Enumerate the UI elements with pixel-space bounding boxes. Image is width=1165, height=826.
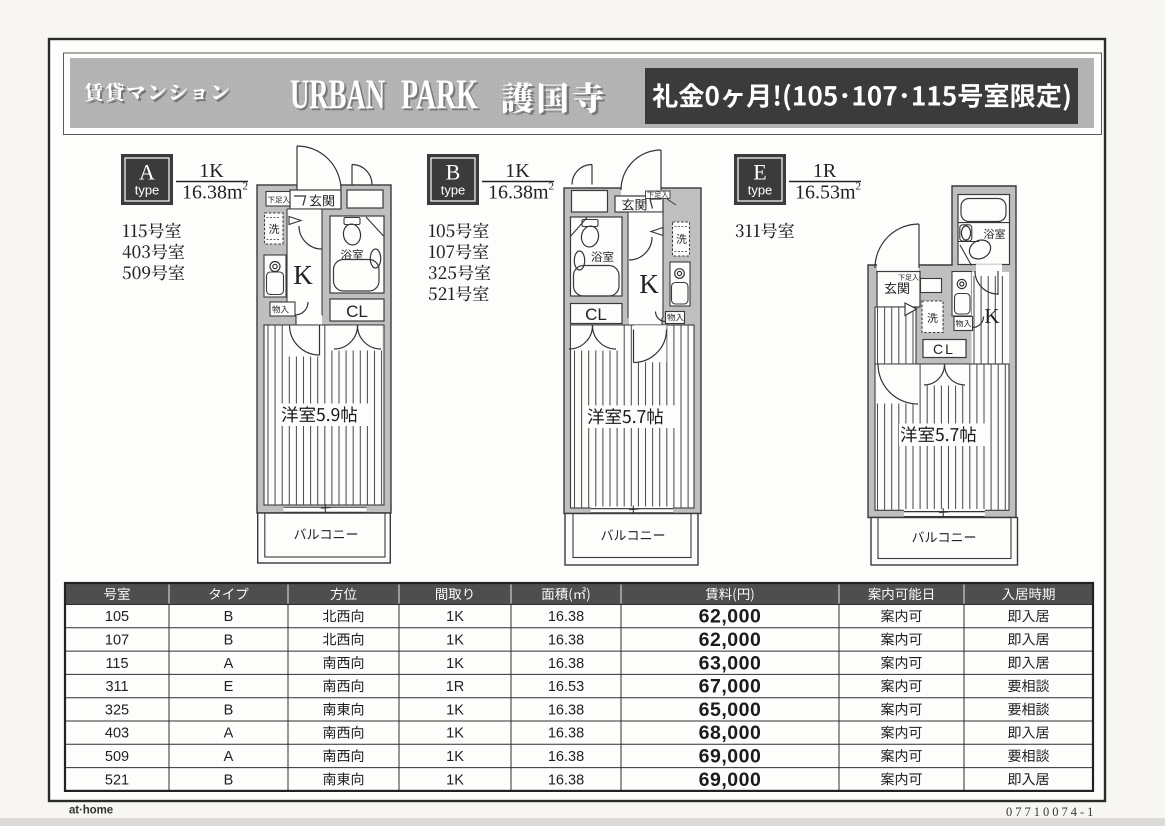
svg-text:K: K [293,260,313,290]
svg-text:1R: 1R [446,679,465,695]
svg-text:A: A [224,726,234,742]
svg-text:1R: 1R [813,160,837,182]
svg-text:16.38: 16.38 [548,702,584,718]
svg-text:16.38: 16.38 [548,772,584,788]
svg-text:16.38: 16.38 [548,749,584,765]
svg-text:311: 311 [105,679,128,695]
svg-text:2: 2 [856,181,862,193]
svg-text:62,000: 62,000 [699,606,762,628]
svg-text:K: K [639,269,659,299]
svg-text:07710074-1: 07710074-1 [1006,805,1096,819]
svg-text:16.38: 16.38 [548,656,584,672]
svg-text:325: 325 [105,702,129,718]
svg-text:69,000: 69,000 [699,745,762,767]
svg-text:16.38: 16.38 [548,609,584,625]
svg-text:at·home: at·home [69,805,113,817]
svg-text:115: 115 [105,656,128,672]
svg-text:CL: CL [346,302,368,321]
svg-text:1K: 1K [446,702,464,718]
svg-text:A: A [224,749,234,765]
svg-text:1K: 1K [505,160,530,182]
svg-text:69,000: 69,000 [699,769,762,791]
svg-text:E: E [224,679,234,695]
svg-text:B: B [224,632,234,648]
svg-text:1K: 1K [446,632,464,648]
svg-text:16.38: 16.38 [548,632,584,648]
svg-text:CL: CL [933,341,955,357]
svg-text:type: type [135,183,160,198]
svg-text:107: 107 [105,632,129,648]
svg-text:1K: 1K [446,656,464,672]
svg-text:PARK: PARK [401,73,478,119]
svg-text:62,000: 62,000 [699,629,762,651]
svg-text:16.53m: 16.53m [795,182,856,204]
svg-text:1K: 1K [446,726,464,742]
svg-text:403: 403 [105,726,129,742]
svg-text:1K: 1K [446,749,464,765]
svg-text:68,000: 68,000 [699,722,762,744]
svg-text:2: 2 [243,181,249,193]
svg-text:A: A [224,656,234,672]
svg-text:type: type [441,183,466,198]
svg-text:16.53: 16.53 [548,679,584,695]
svg-text:16.38: 16.38 [548,726,584,742]
svg-text:B: B [224,772,234,788]
svg-text:1K: 1K [446,609,464,625]
svg-text:A: A [139,160,155,185]
svg-text:67,000: 67,000 [699,676,762,698]
svg-text:CL: CL [585,305,607,324]
svg-text:1K: 1K [199,160,224,182]
svg-text:B: B [224,609,234,625]
svg-text:E: E [753,160,766,185]
svg-text:65,000: 65,000 [699,699,762,721]
svg-text:509: 509 [105,749,129,765]
svg-text:B: B [446,160,461,185]
svg-text:K: K [984,304,999,328]
svg-text:B: B [224,702,234,718]
svg-text:16.38m: 16.38m [488,182,549,204]
svg-text:63,000: 63,000 [699,652,762,674]
svg-text:2: 2 [549,181,555,193]
svg-text:1K: 1K [446,772,464,788]
svg-text:105: 105 [105,609,129,625]
svg-text:URBAN: URBAN [290,73,385,119]
svg-text:type: type [748,183,773,198]
svg-text:521: 521 [105,772,129,788]
svg-text:16.38m: 16.38m [182,182,243,204]
